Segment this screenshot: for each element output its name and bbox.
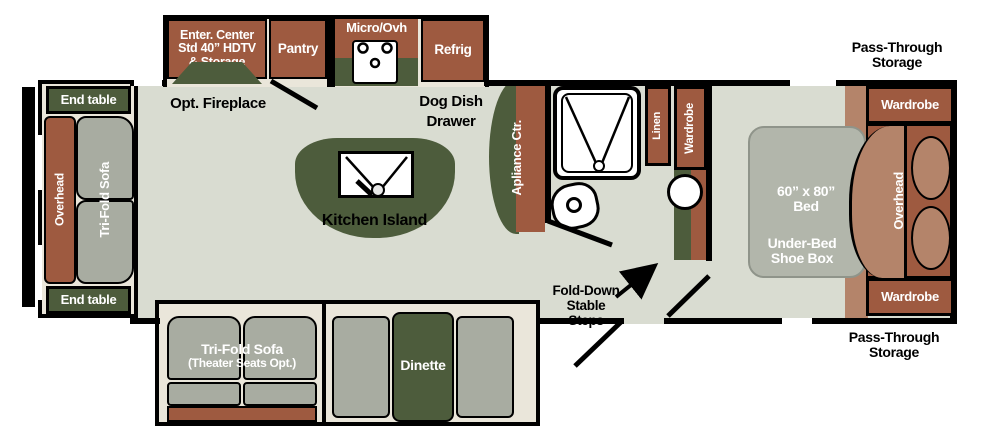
pillow-icon xyxy=(911,136,951,200)
window xyxy=(782,318,812,324)
refrig-label: Refrig xyxy=(434,43,471,58)
end-table-bottom: End table xyxy=(46,286,131,314)
left-sofa-text: Tri-Fold Sofa xyxy=(98,162,112,238)
left-slide-window xyxy=(38,245,42,300)
left-overhead-label: Overhead xyxy=(46,126,74,274)
bathroom-sink-icon xyxy=(667,174,703,210)
pantry-label: Pantry xyxy=(278,42,318,57)
theater-sofa-front xyxy=(167,406,317,422)
bath-wardrobe: Wardrobe xyxy=(674,86,707,170)
end-table-top-label: End table xyxy=(61,93,117,107)
kitchen-island-label: Kitchen Island xyxy=(297,212,452,230)
fold-down-steps-label: Fold-Down Stable Steps xyxy=(538,284,634,329)
cooktop-icon xyxy=(352,40,398,84)
window xyxy=(790,80,836,86)
window xyxy=(134,80,162,86)
island-sink-icon xyxy=(338,151,414,198)
bedroom-overhead-label-wrap: Overhead xyxy=(884,148,914,254)
under-bed-label: Under-Bed Shoe Box xyxy=(748,234,856,268)
bedroom-wardrobe-bottom: Wardrobe xyxy=(866,278,954,316)
under-bed-text: Under-Bed Shoe Box xyxy=(768,236,837,266)
entry-door-line xyxy=(575,322,621,366)
dog-dish-label: Dog Dish Drawer xyxy=(405,92,497,131)
pillow-icon xyxy=(911,206,951,270)
theater-sofa-seat xyxy=(167,382,241,406)
pass-through-storage-top-label: Pass-Through Storage xyxy=(836,40,958,71)
bedroom-overhead-label: Overhead xyxy=(892,172,906,230)
dinette-label: Dinette xyxy=(373,354,473,378)
wardrobe-bottom-label: Wardrobe xyxy=(881,290,939,304)
floorplan-canvas: End table End table Overhead Tri-Fold So… xyxy=(0,0,981,441)
theater-sofa-text: Tri-Fold Sofa (Theater Seats Opt.) xyxy=(188,342,296,370)
micro-label: Micro/Ovh xyxy=(346,21,407,35)
bath-wardrobe-label: Wardrobe xyxy=(684,103,696,154)
end-table-top: End table xyxy=(46,86,131,114)
toilet-bowl xyxy=(566,197,582,213)
opt-fireplace-label: Opt. Fireplace xyxy=(162,96,274,113)
appliance-center-label-wrap: Apliance Ctr. xyxy=(494,90,540,226)
left-overhead-text: Overhead xyxy=(54,174,67,227)
theater-sofa-seat xyxy=(243,382,317,406)
bed-size-text: 60” x 80” Bed xyxy=(777,184,835,214)
dinette-text: Dinette xyxy=(400,358,445,373)
linen-label: Linen xyxy=(652,112,664,140)
appliance-center-label: Apliance Ctr. xyxy=(510,120,524,196)
micro-label-wrap: Micro/Ovh xyxy=(335,20,418,36)
wardrobe-top-label: Wardrobe xyxy=(881,98,939,112)
left-sofa-label: Tri-Fold Sofa xyxy=(76,116,134,284)
end-table-bottom-label: End table xyxy=(61,293,117,307)
linen-cabinet: Linen xyxy=(645,86,671,166)
shower-pan xyxy=(561,93,633,173)
bed-size-label: 60” x 80” Bed xyxy=(752,182,860,216)
theater-sofa-label: Tri-Fold Sofa (Theater Seats Opt.) xyxy=(158,336,326,376)
bedroom-wardrobe-top: Wardrobe xyxy=(866,86,954,124)
pantry: Pantry xyxy=(269,19,327,79)
bottom-wall xyxy=(130,318,160,324)
left-slide-window xyxy=(38,135,42,190)
refrigerator: Refrig xyxy=(421,19,485,82)
pass-through-storage-bottom-label: Pass-Through Storage xyxy=(833,330,955,361)
left-slide-exterior-wall xyxy=(22,87,35,307)
